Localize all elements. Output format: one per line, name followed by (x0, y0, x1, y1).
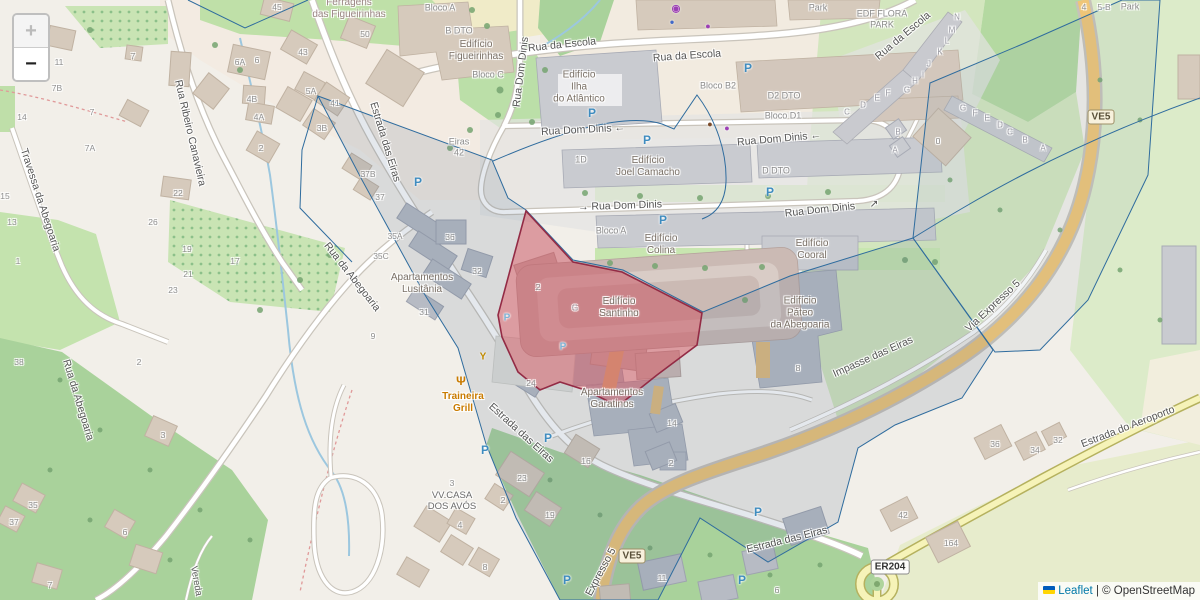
zoom-in-button[interactable]: + (14, 15, 48, 48)
leaflet-link[interactable]: Leaflet (1058, 585, 1093, 597)
attribution-separator: | (1093, 585, 1102, 597)
attribution-bar: Leaflet | © OpenStreetMap (1038, 582, 1200, 600)
map-canvas[interactable]: Rua da EscolaRua da EscolaRua da EscolaR… (0, 0, 1200, 600)
ukraine-flag-icon (1043, 586, 1055, 594)
osm-copyright: © OpenStreetMap (1102, 585, 1195, 597)
zoom-out-button[interactable]: − (14, 48, 48, 80)
map-tiles (0, 0, 1200, 600)
zoom-control: + − (12, 13, 50, 82)
